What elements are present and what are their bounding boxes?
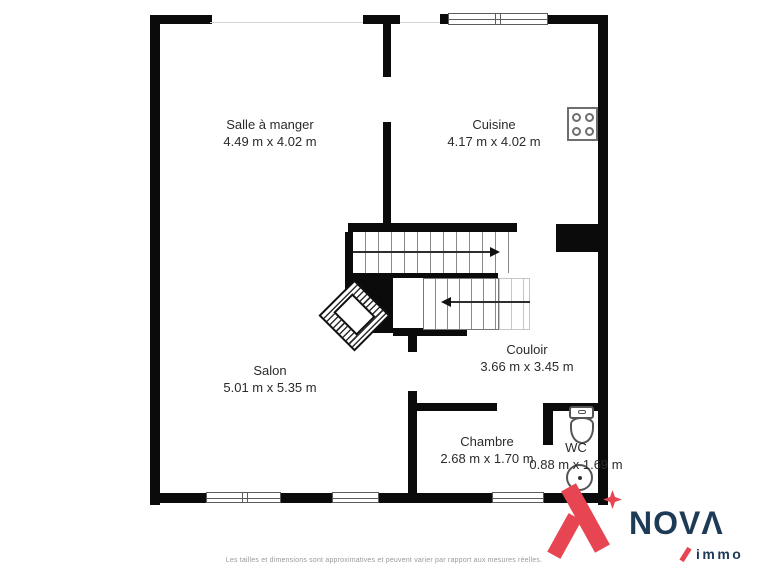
stove-burner-icon [585, 127, 594, 136]
wall-top-b [363, 15, 400, 24]
kitchen-window [448, 13, 548, 25]
logo-wordmark: NOVΛ [629, 505, 724, 542]
wall-stairs-top [348, 223, 517, 232]
room-name: Salon [223, 362, 316, 379]
window-divider [247, 493, 248, 502]
salon-window-left [206, 492, 281, 503]
room-name: Salle à manger [223, 116, 316, 133]
wall-salon-bedroom [408, 391, 417, 493]
room-dims: 0.88 m x 1.69 m [529, 456, 622, 473]
wall-bottom-b [280, 493, 333, 503]
stairs-up-arrow-icon [490, 247, 500, 257]
wall-block-right [556, 224, 598, 252]
room-dims: 2.68 m x 1.70 m [440, 450, 533, 467]
room-dims: 4.17 m x 4.02 m [447, 133, 540, 150]
room-dims: 4.49 m x 4.02 m [223, 133, 316, 150]
wall-window-cap [440, 14, 448, 24]
room-label-salle-a-manger: Salle à manger 4.49 m x 4.02 m [223, 116, 316, 150]
room-name: Cuisine [447, 116, 540, 133]
wall-opening-line [210, 22, 364, 23]
window-divider [242, 493, 243, 502]
stove-burner-icon [572, 127, 581, 136]
room-name: Chambre [440, 433, 533, 450]
window-glass-line [333, 498, 378, 499]
wall-diningroom-kitchen-upper [383, 15, 391, 77]
stairs-lower-flight-faded [499, 278, 530, 330]
sink-drain [578, 476, 582, 480]
wall-bottom-c [378, 493, 493, 503]
floor-plan: Salle à manger 4.49 m x 4.02 m Cuisine 4… [0, 0, 768, 576]
wall-left [150, 15, 160, 505]
logo-subbrand: immo [696, 546, 743, 562]
window-glass-line [207, 498, 280, 499]
stairs-up-line [353, 251, 491, 253]
window-divider [495, 14, 496, 24]
room-dims: 3.66 m x 3.45 m [480, 358, 573, 375]
stove-burner-icon [585, 113, 594, 122]
wall-diningroom-kitchen-lower [383, 122, 391, 232]
room-label-wc: WC 0.88 m x 1.69 m [529, 439, 622, 473]
window-glass-line [493, 498, 543, 499]
stove-icon [567, 107, 598, 141]
bedroom-window [492, 492, 544, 503]
wall-bottom-a [150, 493, 207, 503]
wall-top-a [150, 15, 212, 24]
room-name: WC [529, 439, 622, 456]
stairs-down-arrow-icon [441, 297, 451, 307]
wall-salon-hall-stub [408, 336, 417, 352]
room-label-cuisine: Cuisine 4.17 m x 4.02 m [447, 116, 540, 150]
room-dims: 5.01 m x 5.35 m [223, 379, 316, 396]
window-divider [500, 14, 501, 24]
room-label-salon: Salon 5.01 m x 5.35 m [223, 362, 316, 396]
toilet-button [578, 410, 586, 414]
wall-opening-line [400, 22, 440, 23]
room-label-couloir: Couloir 3.66 m x 3.45 m [480, 341, 573, 375]
room-name: Couloir [480, 341, 573, 358]
room-label-chambre: Chambre 2.68 m x 1.70 m [440, 433, 533, 467]
stove-burner-icon [572, 113, 581, 122]
salon-window-right [332, 492, 379, 503]
disclaimer-text: Les tailles et dimensions sont approxima… [0, 557, 768, 564]
stairs-down-line [450, 301, 530, 303]
wall-right [598, 15, 608, 505]
window-glass-line [449, 19, 547, 20]
wall-bedroom-top [417, 403, 497, 411]
stairs-lower-flight [423, 278, 499, 330]
logo-n-mark-short [547, 513, 581, 559]
